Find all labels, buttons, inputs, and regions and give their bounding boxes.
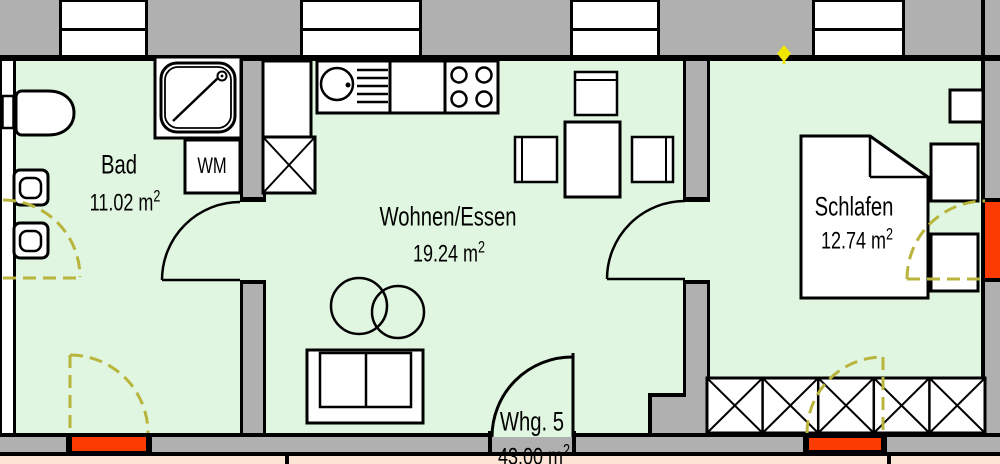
unit-area-exponent: 2	[563, 441, 570, 460]
schlafen-area-exponent: 2	[886, 225, 893, 244]
schlafen-area-label: 12.74 m2	[821, 227, 893, 254]
bad-area-exponent: 2	[153, 187, 160, 206]
stove	[445, 61, 498, 113]
bed-pillow-1	[931, 144, 978, 201]
floorplan-canvas: Bad 11.02 m2 Wohnen/Essen 19.24 m2 Schla…	[0, 0, 1000, 464]
dining-chair-top	[575, 72, 617, 115]
schlafen-room-label: Schlafen	[815, 194, 894, 221]
wohnen-room-label: Wohnen/Essen	[380, 204, 517, 231]
sink-2	[14, 223, 48, 258]
kitchen-counter	[390, 61, 445, 113]
yellow-diamond-marker-icon	[777, 45, 791, 64]
wohnen-area-label: 19.24 m2	[413, 240, 485, 267]
kitchen-corner-unit	[263, 137, 315, 193]
toilet	[3, 91, 75, 135]
wardrobe	[707, 378, 985, 433]
kitchen-sink-unit	[317, 61, 390, 113]
bad-room-label: Bad	[101, 152, 137, 179]
side-tables	[331, 278, 424, 338]
dashed-door-bad-bottom	[70, 355, 148, 433]
sofa	[307, 350, 423, 423]
nightstand	[950, 90, 983, 122]
bed-pillow-2	[931, 234, 978, 291]
shower	[155, 57, 241, 138]
dining-chair-right	[632, 137, 673, 182]
kitchen-tall-cabinet	[263, 61, 311, 137]
wohnen-area-exponent: 2	[478, 238, 485, 257]
bad-door-swing	[162, 202, 240, 280]
unit-area-label: 43.00 m2	[498, 443, 570, 464]
dining-table	[565, 122, 620, 197]
schlafen-area-value: 12.74 m	[821, 228, 886, 255]
unit-name-label: Whg. 5	[500, 409, 564, 436]
unit-area-value: 43.00 m	[498, 444, 563, 464]
bad-area-label: 11.02 m2	[90, 189, 161, 216]
schlafen-door-swing	[607, 201, 685, 279]
sink-1	[14, 170, 48, 205]
wohnen-area-value: 19.24 m	[413, 241, 478, 268]
dining-chair-left	[515, 137, 557, 182]
washing-machine-label: WM	[197, 155, 226, 177]
bad-area-value: 11.02 m	[90, 190, 154, 217]
